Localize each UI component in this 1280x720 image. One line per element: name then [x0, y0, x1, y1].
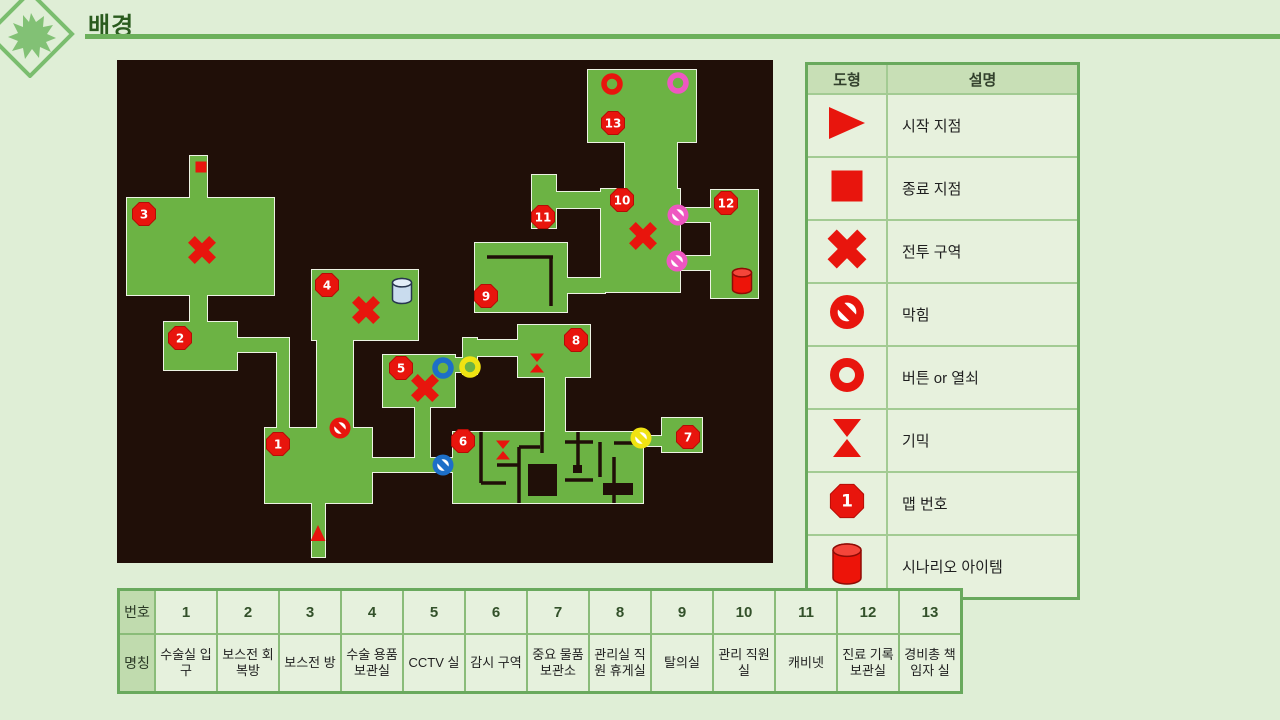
legend-table: 도형 설명 시작 지점 종료 지점 전투 구역 막힘 — [805, 62, 1080, 600]
room-name-cell: 수술 용품 보관실 — [341, 634, 403, 693]
scenario-item-cylinder-icon — [733, 269, 752, 294]
map-number-badge-2: 2 — [169, 327, 192, 350]
legend-header-shape: 도형 — [807, 64, 888, 95]
map-number-badge-4: 4 — [316, 274, 339, 297]
blocked-icon — [631, 428, 652, 449]
room-name-cell: 진료 기록 보관실 — [837, 634, 899, 693]
map-number-badge-5: 5 — [390, 357, 413, 380]
dungeon-map: 12345678910111213 — [117, 60, 773, 563]
scenario-item-cylinder-icon — [393, 279, 412, 304]
room-number-cell: 3 — [279, 590, 341, 635]
legend-desc: 종료 지점 — [887, 157, 1079, 220]
legend-shape-cell — [807, 220, 888, 283]
blocked-icon — [433, 455, 454, 476]
legend-shape-cell — [807, 94, 888, 157]
map-number-badge-7: 7 — [677, 426, 700, 449]
room-number-cell: 13 — [899, 590, 962, 635]
svg-text:2: 2 — [176, 332, 184, 346]
rooms-table: 번호12345678910111213 명칭수술실 입구보스전 회복방보스전 방… — [117, 588, 963, 694]
row-header-number: 번호 — [119, 590, 156, 635]
legend-header-row: 도형 설명 — [807, 64, 1079, 95]
legend-shape-cell — [807, 283, 888, 346]
map-number-octagon-icon: 1 — [813, 474, 881, 528]
end-square-icon — [813, 159, 881, 213]
map-number-badge-11: 11 — [532, 206, 555, 229]
room-number-cell: 12 — [837, 590, 899, 635]
legend-desc: 버튼 or 열쇠 — [887, 346, 1079, 409]
svg-text:9: 9 — [482, 290, 490, 304]
room-name-cell: 중요 물품 보관소 — [527, 634, 589, 693]
svg-text:3: 3 — [140, 208, 148, 222]
legend-desc: 맵 번호 — [887, 472, 1079, 535]
room-number-cell: 6 — [465, 590, 527, 635]
room-number-cell: 2 — [217, 590, 279, 635]
title-underline — [85, 34, 1280, 39]
map-number-badge-13: 13 — [602, 112, 625, 135]
map-number-badge-10: 10 — [611, 189, 634, 212]
room-name-cell: 탈의실 — [651, 634, 713, 693]
room-name-cell: 보스전 회복방 — [217, 634, 279, 693]
svg-text:1: 1 — [274, 438, 282, 452]
room-number-cell: 11 — [775, 590, 837, 635]
blocked-icon — [330, 418, 351, 439]
map-svg: 12345678910111213 — [117, 60, 773, 563]
svg-text:11: 11 — [535, 211, 552, 225]
room-name-cell: 관리 직원실 — [713, 634, 775, 693]
room-name-cell: 캐비넷 — [775, 634, 837, 693]
end-square-icon — [196, 162, 207, 173]
leaf-logo-icon — [0, 0, 82, 78]
scenario-item-cylinder-icon — [813, 537, 881, 591]
leaf-shape — [8, 13, 56, 59]
legend-row: 전투 구역 — [807, 220, 1079, 283]
room-number-cell: 5 — [403, 590, 465, 635]
map-block — [528, 464, 557, 496]
room-name-cell: 수술실 입구 — [155, 634, 217, 693]
legend-desc: 기믹 — [887, 409, 1079, 472]
svg-text:6: 6 — [459, 435, 467, 449]
legend-desc: 막힘 — [887, 283, 1079, 346]
legend-shape-cell — [807, 346, 888, 409]
legend-row: 버튼 or 열쇠 — [807, 346, 1079, 409]
legend-row: 기믹 — [807, 409, 1079, 472]
svg-text:8: 8 — [572, 334, 580, 348]
legend-shape-cell — [807, 409, 888, 472]
start-triangle-icon — [813, 96, 881, 150]
map-block — [603, 483, 633, 495]
map-number-badge-8: 8 — [565, 329, 588, 352]
legend-shape-cell — [807, 157, 888, 220]
room-name-cell: 관리실 직원 휴게실 — [589, 634, 651, 693]
legend-row: 시작 지점 — [807, 94, 1079, 157]
room-number-cell: 10 — [713, 590, 775, 635]
legend-shape-cell: 1 — [807, 472, 888, 535]
legend-desc: 시작 지점 — [887, 94, 1079, 157]
blocked-icon — [668, 205, 689, 226]
svg-text:1: 1 — [841, 492, 853, 512]
map-number-badge-6: 6 — [452, 430, 475, 453]
room-name-cell: 경비총 책임자 실 — [899, 634, 962, 693]
blocked-icon — [813, 285, 881, 339]
room-names-row: 명칭수술실 입구보스전 회복방보스전 방수술 용품 보관실CCTV 실감시 구역… — [119, 634, 962, 693]
svg-text:7: 7 — [684, 431, 692, 445]
svg-text:13: 13 — [605, 117, 622, 131]
map-block — [573, 465, 582, 473]
room-number-cell: 1 — [155, 590, 217, 635]
room-numbers-row: 번호12345678910111213 — [119, 590, 962, 635]
map-number-badge-3: 3 — [133, 203, 156, 226]
legend-row: 막힘 — [807, 283, 1079, 346]
svg-text:12: 12 — [718, 197, 735, 211]
room-name-cell: CCTV 실 — [403, 634, 465, 693]
room-number-cell: 4 — [341, 590, 403, 635]
map-number-badge-9: 9 — [475, 285, 498, 308]
svg-text:4: 4 — [323, 279, 331, 293]
room-name-cell: 감시 구역 — [465, 634, 527, 693]
room-number-cell: 8 — [589, 590, 651, 635]
row-header-name: 명칭 — [119, 634, 156, 693]
gimmick-hourglass-icon — [813, 411, 881, 465]
button-key-ring-icon — [813, 348, 881, 402]
blocked-icon — [667, 251, 688, 272]
map-number-badge-1: 1 — [267, 433, 290, 456]
legend-header-desc: 설명 — [887, 64, 1079, 95]
room-number-cell: 7 — [527, 590, 589, 635]
battle-x-icon — [813, 222, 881, 276]
room-number-cell: 9 — [651, 590, 713, 635]
legend-row: 종료 지점 — [807, 157, 1079, 220]
legend-row: 1 맵 번호 — [807, 472, 1079, 535]
svg-text:5: 5 — [397, 362, 405, 376]
room-name-cell: 보스전 방 — [279, 634, 341, 693]
svg-text:10: 10 — [614, 194, 631, 208]
legend-desc: 전투 구역 — [887, 220, 1079, 283]
map-number-badge-12: 12 — [715, 192, 738, 215]
